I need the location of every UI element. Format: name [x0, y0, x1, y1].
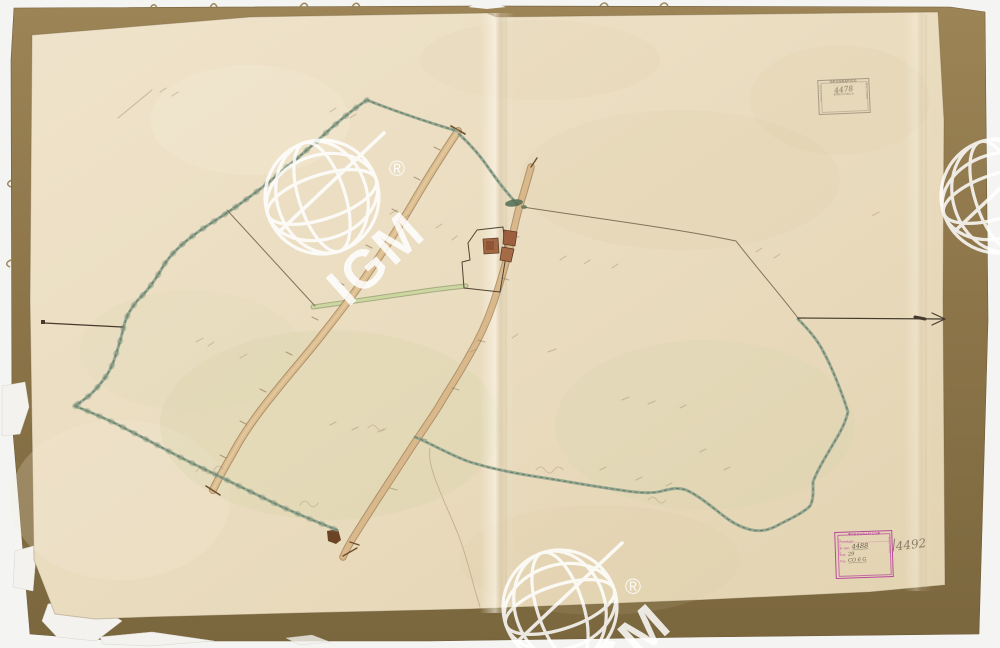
- library-stamp-side-left: ISTITUTO: [819, 85, 823, 102]
- registered-mark-icon: ®: [389, 156, 405, 181]
- archive-stamp-side-left: ISTITUTO: [839, 539, 842, 556]
- library-stamp: GEOGRAFICO .................. 4478 BIBLI…: [817, 78, 870, 115]
- archive-pos-value: CO 6 G: [848, 557, 867, 563]
- archive-stamp-title: GEOGRAFICO: [851, 532, 877, 536]
- library-stamp-side-right: MILITARE: [864, 83, 868, 100]
- pencil-number: 4492: [895, 536, 927, 554]
- archive-stamp: ✱GEOGRAFICO✱ Portafoglio N. Gen. 4488 Ca…: [834, 530, 894, 579]
- archive-stamp-star-right: ✱: [877, 532, 880, 536]
- registered-mark-icon: ®: [625, 574, 641, 599]
- archive-pos-label: Pos.: [840, 560, 846, 563]
- archive-ngen-value: 4488: [851, 543, 868, 550]
- archive-cas-value: 29: [848, 552, 855, 557]
- scanned-cadastral-map: IGM ® IGM ® GEOGRAFICO .................…: [0, 0, 1000, 648]
